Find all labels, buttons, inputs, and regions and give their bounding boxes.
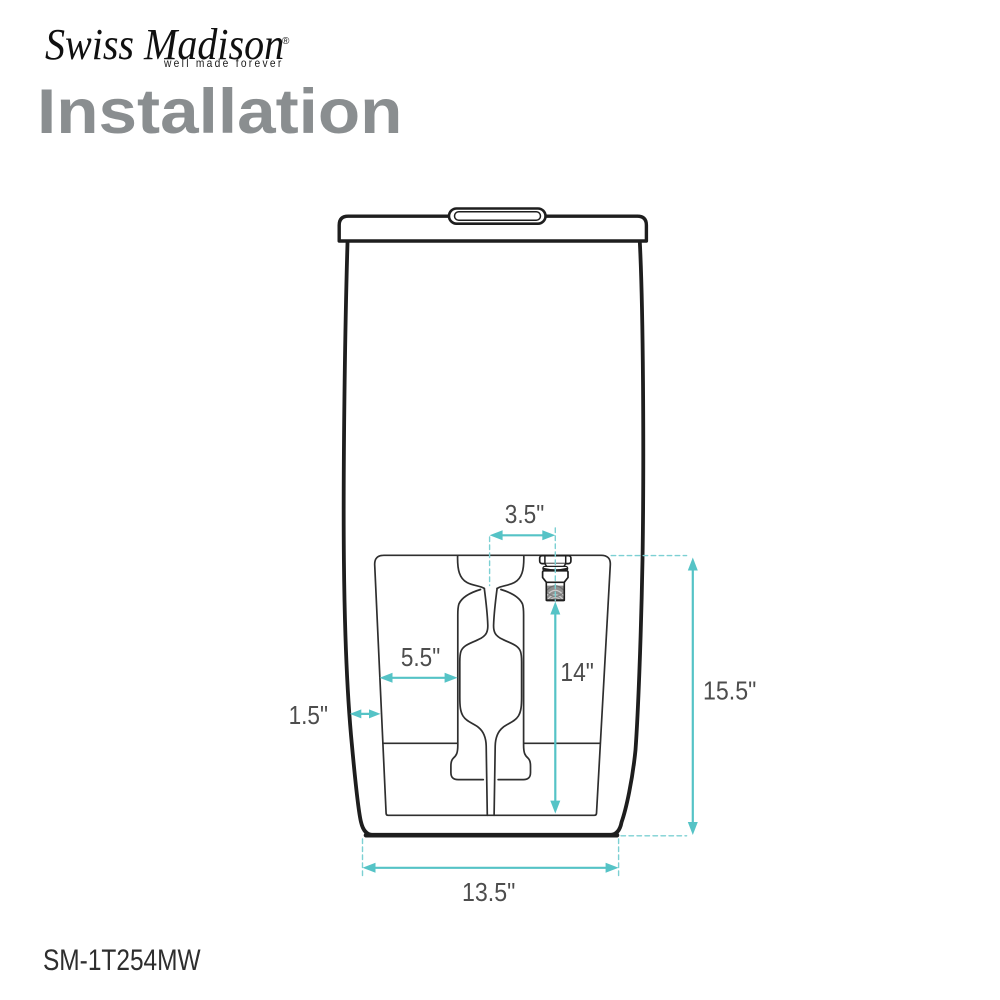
- svg-text:3.5": 3.5": [505, 499, 545, 529]
- svg-text:15.5": 15.5": [703, 676, 756, 706]
- svg-text:1.5": 1.5": [289, 700, 328, 730]
- svg-text:5.5": 5.5": [401, 642, 440, 672]
- svg-text:14": 14": [560, 657, 594, 687]
- svg-text:13.5": 13.5": [462, 877, 515, 907]
